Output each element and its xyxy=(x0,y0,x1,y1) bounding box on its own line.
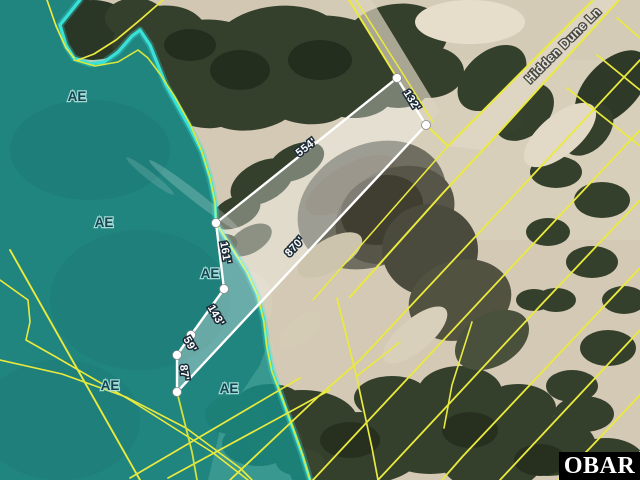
flood-zone-label-ae-2: AE xyxy=(95,215,114,230)
map-image: 554' 132' 870' 161' 143' 59' 87' AE AE A… xyxy=(0,0,640,480)
flood-zone-label-ae-3: AE xyxy=(201,266,220,281)
aerial-basemap: 554' 132' 870' 161' 143' 59' 87' AE AE A… xyxy=(0,0,640,480)
obar-watermark: OBAR xyxy=(559,452,640,480)
flood-zone-label-ae-4: AE xyxy=(101,378,120,393)
flood-zone-label-ae-5: AE xyxy=(220,381,239,396)
flood-zone-label-ae-1: AE xyxy=(68,89,87,104)
obar-watermark-text: OBAR xyxy=(564,454,635,478)
dimension-label-87: 87' xyxy=(177,364,191,381)
